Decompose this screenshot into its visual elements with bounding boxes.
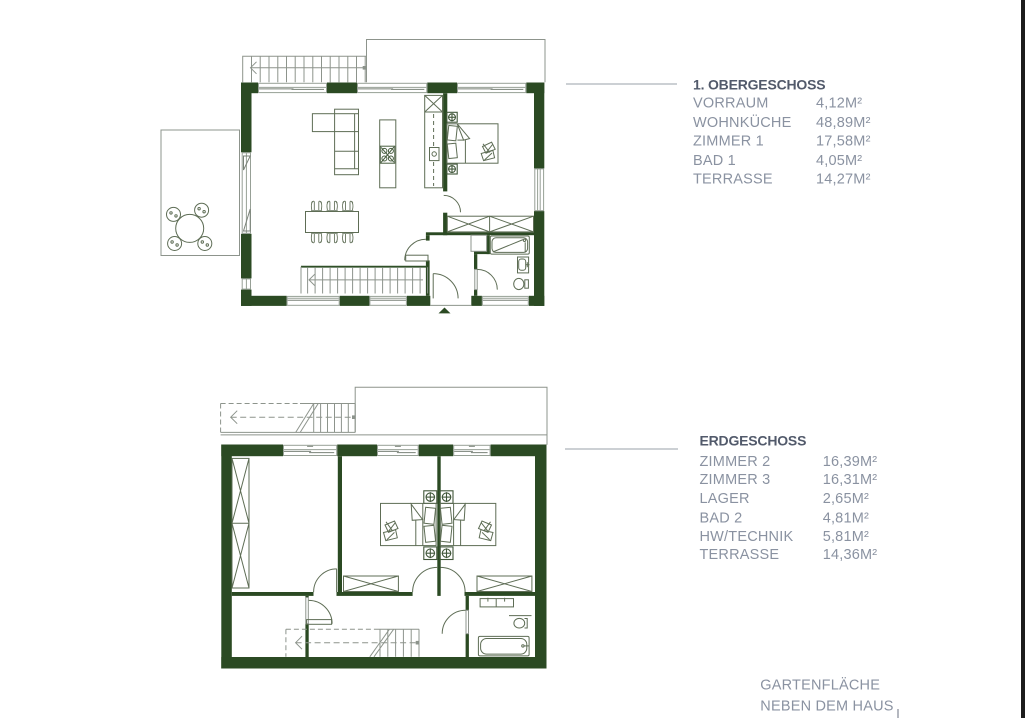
svg-text:2,65M²: 2,65M²: [823, 491, 869, 507]
svg-text:TERRASSE: TERRASSE: [700, 547, 780, 563]
svg-text:4,12M²: 4,12M²: [816, 96, 862, 112]
svg-text:4,05M²: 4,05M²: [816, 153, 862, 169]
svg-text:BAD 2: BAD 2: [700, 511, 743, 527]
svg-text:16,39M²: 16,39M²: [823, 454, 878, 470]
svg-text:5,81M²: 5,81M²: [823, 529, 869, 545]
svg-text:VORRAUM: VORRAUM: [693, 96, 769, 112]
svg-text:TERRASSE: TERRASSE: [693, 171, 773, 187]
svg-text:GARTENFLÄCHE: GARTENFLÄCHE: [760, 677, 880, 694]
svg-text:14,27M²: 14,27M²: [816, 171, 871, 187]
svg-text:WOHNKÜCHE: WOHNKÜCHE: [693, 113, 792, 131]
svg-text:LAGER: LAGER: [700, 491, 750, 507]
svg-text:BAD 1: BAD 1: [693, 153, 736, 169]
svg-text:16,31M²: 16,31M²: [823, 472, 878, 488]
svg-text:ERDGESCHOSS: ERDGESCHOSS: [700, 433, 807, 449]
svg-text:ZIMMER 3: ZIMMER 3: [700, 472, 771, 488]
svg-text:14,36M²: 14,36M²: [823, 547, 878, 563]
svg-text:NEBEN DEM HAUS: NEBEN DEM HAUS: [760, 699, 893, 715]
svg-text:1. OBERGESCHOSS: 1. OBERGESCHOSS: [693, 77, 825, 93]
svg-text:HW/TECHNIK: HW/TECHNIK: [700, 529, 794, 545]
svg-text:4,81M²: 4,81M²: [823, 511, 869, 527]
svg-text:ZIMMER 1: ZIMMER 1: [693, 134, 764, 150]
svg-text:ZIMMER 2: ZIMMER 2: [700, 454, 771, 470]
svg-text:17,58M²: 17,58M²: [816, 134, 871, 150]
svg-text:48,89M²: 48,89M²: [816, 115, 871, 131]
